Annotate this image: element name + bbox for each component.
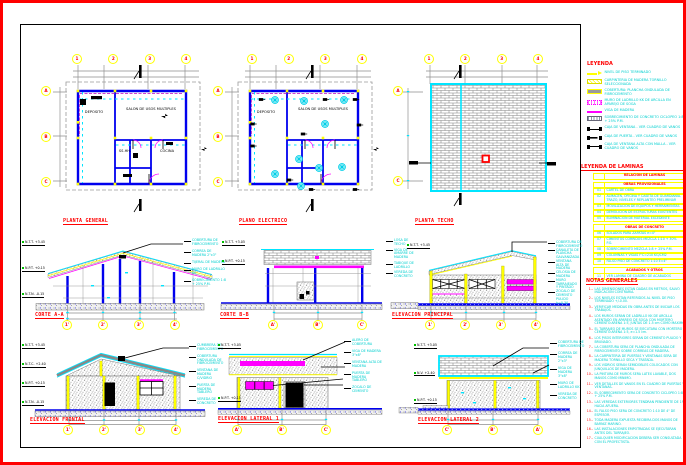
plan-architecture-linework <box>53 65 207 212</box>
leader-line <box>189 371 196 372</box>
row-code: 07 <box>594 238 605 247</box>
note-item: 8.- LA CARPINTERIA DE PUERTAS Y VENTANAS… <box>586 355 686 362</box>
grid-bubble: 3 <box>497 54 507 64</box>
grid-bubble: B <box>41 132 51 142</box>
leader-line <box>548 262 555 263</box>
grid-bubble: B' <box>488 425 498 435</box>
grid-bubble: 3 <box>320 54 330 64</box>
row-code <box>594 174 605 179</box>
leader-line <box>548 292 555 293</box>
leader-line <box>548 273 555 274</box>
note-number: 14.- <box>586 410 593 417</box>
legend-items: NIVEL DE PISO TERMINADO CARPINTERIA DE M… <box>587 71 686 151</box>
legend-swatch <box>587 111 602 113</box>
legend-panel: LEYENDA NIVEL DE PISO TERMINADO CARPINTE… <box>587 61 686 154</box>
note-number: 4.- <box>586 315 593 326</box>
grid-bubbles-plan2-left: ABC <box>213 86 223 187</box>
legend-label: CAJA DE VENTANA ALTA CON MALLA - VER CUA… <box>605 143 686 151</box>
note-text: TODA MADERA EXPUESTA RECIBIRA DOS MANOS … <box>595 419 686 426</box>
leader-line <box>548 281 555 282</box>
legend-item: CAJA DE PUERTA - VER CUADRO DE VANOS <box>587 135 686 141</box>
level-label: N.T.T. +3.45 <box>22 241 45 246</box>
table-row: 07 CIMIENTOS CORRIDOS MEZCLA 1:10 + 30% … <box>593 237 685 248</box>
grid-bubbles-roof-left: AC <box>393 86 403 186</box>
note-number: 8.- <box>586 355 593 362</box>
grid-bubble: A <box>393 86 403 96</box>
legend-label: CAJA DE VENTANA - VER CUADRO DE VANOS <box>605 126 681 130</box>
legend-item: CARPINTERIA DE MADERA TORNILLO SELECCION… <box>587 79 686 87</box>
row-text: CARTEL DE OBRA <box>605 189 684 194</box>
note-item: 6.- LOS PISOS INTERIORES SERAN DE CEMENT… <box>586 337 686 344</box>
level-label: N.T.T. +3.45 <box>407 244 430 249</box>
leader-line <box>550 343 557 344</box>
legend-item: COBERTURA: PLANCHA ONDULADA DE FIBROCEME… <box>587 89 686 97</box>
level-label: N.T.T. +3.05 <box>218 344 241 349</box>
callout-label: ZOCALO DE CEMENTO PULIDO h=0.30 <box>556 290 580 305</box>
row-text: ELIMINACION DE MATERIAL EXCEDENTE <box>605 217 684 222</box>
note-text: LOS NIVELES ESTAN REFERIDOS AL NIVEL DE … <box>595 297 686 304</box>
grid-bubble: 4' <box>531 320 541 330</box>
grid-bubble: A' <box>232 425 242 435</box>
level-label: N.P.T. +0.15 <box>414 399 437 404</box>
material-callouts-elev-lateral1: ALERO DE COBERTURAVIGA DE MADERA 3"x8"VE… <box>344 339 382 394</box>
legend-label: NIVEL DE PISO TERMINADO <box>605 71 651 75</box>
grid-bubble: 1' <box>63 425 73 435</box>
note-number: 10.- <box>586 373 593 380</box>
grid-bubbles-elev-principal: 1'2'3'4' <box>425 320 541 330</box>
leader-line <box>189 357 196 358</box>
view-title-elev-lateral1: ELEVACION LATERAL 1 <box>218 416 279 423</box>
grid-bubbles-plan1-left: ABC <box>41 86 51 187</box>
leader-line <box>344 374 351 375</box>
note-number: 16.- <box>586 428 593 435</box>
grid-bubble: C' <box>321 425 331 435</box>
note-item: 17.- CUALQUIER MODIFICACION DEBERA SER C… <box>586 437 686 444</box>
table-row: RELACION DE LAMINAS <box>593 173 685 180</box>
callout-label: COBERTURA DE FIBROCEMENTO <box>192 239 226 247</box>
level-callouts-elev-principal: N.T.T. +3.45 <box>407 244 431 252</box>
view-title-elev-frontal: ELEVACION FRONTAL <box>30 417 85 424</box>
material-callouts-elev-lateral2: COBERTURA DE FIBROCEMENTOCORREA DE MADER… <box>550 341 581 401</box>
legend-swatch <box>587 126 602 132</box>
table-row: 05 ELIMINACION DE MATERIAL EXCEDENTE <box>593 216 685 223</box>
leader-line <box>386 250 393 251</box>
room-label: SS.HH. <box>113 150 137 154</box>
grid-bubble: 3 <box>145 54 155 64</box>
level-callouts-elev-lateral2: N.T.T. +3.05N.V. +2.40N.P.T. +0.15 <box>414 344 441 404</box>
callout-label: MURO DE LADRILLO KK <box>558 382 581 390</box>
row-text: MOVILIZACION DE EQUIPOS Y HERRAMIENTAS <box>605 205 684 210</box>
leader-line <box>344 363 351 364</box>
callout-label: PUERTA DE MADERA TABLERO <box>352 372 382 383</box>
grid-bubble: B' <box>277 425 287 435</box>
note-number: 5.- <box>586 328 593 335</box>
legend-swatch <box>587 89 602 94</box>
grid-bubble: 3' <box>134 320 144 330</box>
leader-line <box>550 354 557 355</box>
material-callouts-corte-a: COBERTURA DE FIBROCEMENTOCORREA DE MADER… <box>184 239 226 287</box>
legend-swatch <box>587 135 602 141</box>
leader-line <box>189 386 196 387</box>
note-item: 15.- TODA MADERA EXPUESTA RECIBIRA DOS M… <box>586 419 686 426</box>
legend-swatch <box>587 116 602 121</box>
grid-bubbles-plan1-top: 1234 <box>72 54 191 64</box>
grid-bubble: 2 <box>460 54 470 64</box>
note-text: LAS VEREDAS EXTERIORES TENDRAN PENDIENTE… <box>595 401 686 408</box>
grid-bubble: 1' <box>425 320 435 330</box>
drawing-sheet: PLANTA GENERAL PLANO ELECTRICO PLANTA TE… <box>0 0 686 465</box>
note-item: 5.- EL TARRAJEO DE MUROS SE EJECUTARA CO… <box>586 328 686 335</box>
notes-list: 1.- LAS DIMENSIONES ESTAN DADAS EN METRO… <box>586 288 686 445</box>
callout-label: CORREA DE MADERA 2"x3" <box>558 352 581 363</box>
row-code <box>594 225 605 230</box>
legend-item: CAJA DE VENTANA ALTA CON MALLA - VER CUA… <box>587 143 686 151</box>
level-callouts-corte-a: N.T.T. +3.45N.P.T. +0.15N.T.N. -0.15 <box>22 241 50 298</box>
legend-swatch <box>587 79 602 84</box>
roof-plan-linework <box>403 65 556 206</box>
row-code: 01 <box>594 189 605 194</box>
row-text: OBRAS PROVISIONALES <box>605 183 684 188</box>
legend-label: MURO DE LADRILLO KK DE ARCILLA EN APAREJ… <box>605 99 686 107</box>
leader-line <box>189 346 196 347</box>
grid-bubble: 3' <box>135 425 145 435</box>
row-text: DEMOLICION DE ESTRUCTURAS EXISTENTES <box>605 211 684 216</box>
note-number: 15.- <box>586 419 593 426</box>
callout-label: ZOCALO DE CEMENTO <box>352 386 382 394</box>
grid-bubble: A <box>41 86 51 96</box>
room-label: SALON DE USOS MULTIPLES <box>293 108 353 112</box>
legend-label: CAJA DE PUERTA - VER CUADRO DE VANOS <box>605 135 678 139</box>
note-number: 2.- <box>586 297 593 304</box>
note-item: 16.- LAS INSTALACIONES EMPOTRADAS SE EJE… <box>586 428 686 435</box>
level-callouts-elev-frontal: N.T.T. +3.45N.T.C. +2.40N.P.T. +0.15N.T.… <box>22 344 52 406</box>
leader-line <box>386 241 393 242</box>
view-title-corte-a: CORTE A-A <box>35 312 64 319</box>
note-item: 10.- LA PINTURA DE MUROS SERA LATEX LAVA… <box>586 373 686 380</box>
leader-line <box>550 384 557 385</box>
leader-line <box>184 252 191 253</box>
row-text: ALMACEN, OFICINA Y CASETA DE GUARDIANIA.… <box>605 195 684 204</box>
roof-center-marker <box>483 156 490 163</box>
row-code: 08 <box>594 247 605 252</box>
leader-line <box>344 352 351 353</box>
leader-line <box>344 388 351 389</box>
grid-bubble: 1 <box>424 54 434 64</box>
grid-bubble: C <box>393 176 403 186</box>
note-item: 13.- LAS VEREDAS EXTERIORES TENDRAN PEND… <box>586 401 686 408</box>
row-code: 03 <box>594 205 605 210</box>
grid-bubble: C' <box>442 425 452 435</box>
note-item: 3.- VERIFICAR MEDIDAS EN OBRA ANTES DE I… <box>586 306 686 313</box>
level-label: N.T.N. -0.15 <box>22 401 44 406</box>
row-code: 02 <box>594 195 605 204</box>
note-item: 14.- EL FALSO PISO SERA DE CONCRETO 1:10… <box>586 410 686 417</box>
row-code <box>594 183 605 188</box>
note-text: LA PINTURA DE MUROS SERA LATEX LAVABLE, … <box>595 373 686 380</box>
table-row: 10 FALSO PISO DE CONCRETO 1:10 E=4" <box>593 259 685 266</box>
level-label: N.T.T. +3.45 <box>22 344 45 349</box>
room-label: COCINA <box>153 150 181 154</box>
leader-line <box>344 341 351 342</box>
sheet-index-title: LEYENDA DE LAMINAS <box>581 164 686 171</box>
level-label: N.P.T. +0.15 <box>218 397 241 402</box>
callout-label: VIGA DE MADERA 3"x8" <box>558 367 581 378</box>
note-text: EL SOBRECIMIENTO SERA DE CONCRETO CICLOP… <box>595 392 686 399</box>
note-text: VERIFICAR MEDIDAS EN OBRA ANTES DE INICI… <box>595 306 686 313</box>
note-number: 7.- <box>586 346 593 353</box>
note-number: 9.- <box>586 364 593 371</box>
callout-label: ALERO DE COBERTURA <box>352 339 382 347</box>
note-text: EL FALSO PISO SERA DE CONCRETO 1:10 DE 4… <box>595 410 686 417</box>
leader-line <box>189 400 196 401</box>
sheet-index-table: RELACION DE LAMINAS OBRAS PROVISIONALES … <box>593 173 685 281</box>
note-number: 1.- <box>586 288 593 295</box>
note-text: LAS DIMENSIONES ESTAN DADAS EN METROS, S… <box>595 288 686 295</box>
view-title-elev-lateral2: ELEVACION LATERAL 2 <box>418 417 479 424</box>
legend-swatch <box>587 100 602 105</box>
level-label: N.P.T. +0.15 <box>22 267 45 272</box>
grid-bubble: 2 <box>108 54 118 64</box>
grid-bubble: A' <box>268 320 278 330</box>
grid-bubbles-roof-top: 1234 <box>424 54 543 64</box>
grid-bubble: 4 <box>357 54 367 64</box>
row-code: 09 <box>594 254 605 259</box>
callout-label: VEREDA DE CONCRETO <box>558 393 581 401</box>
grid-bubbles-elev-lateral2: C'B'A' <box>442 425 543 435</box>
legend-item: MURO DE LADRILLO KK DE ARCILLA EN APAREJ… <box>587 99 686 107</box>
grid-bubbles-plan2-top: 1234 <box>247 54 367 64</box>
row-text: OBRAS DE CONCRETO <box>605 225 684 230</box>
grid-bubble: 1 <box>247 54 257 64</box>
note-text: LOS PISOS INTERIORES SERAN DE CEMENTO PU… <box>595 337 686 344</box>
callout-label: SOBRECIMIENTO 1:8 + 25% P.M. <box>192 279 226 287</box>
callout-label: TIJERAL DE MADERA <box>192 261 225 265</box>
callout-label: TABIQUE DE LADRILLO <box>394 262 419 270</box>
view-title-plan-techo: PLANTA TECHO <box>415 218 454 225</box>
note-item: 1.- LAS DIMENSIONES ESTAN DADAS EN METRO… <box>586 288 686 295</box>
note-number: 12.- <box>586 392 593 399</box>
general-notes-panel: NOTAS GENERALES 1.- LAS DIMENSIONES ESTA… <box>586 267 686 447</box>
view-title-elev-principal: ELEVACION PRINCIPAL <box>392 312 453 319</box>
leader-line <box>386 264 393 265</box>
room-label: DEPOSITO <box>251 111 281 115</box>
row-code: 10 <box>594 260 605 265</box>
note-item: 9.- LOS VIDRIOS SERAN SEMIDOBLES COLOCAD… <box>586 364 686 371</box>
legend-label: COBERTURA: PLANCHA ONDULADA DE FIBROCEME… <box>605 89 686 97</box>
row-code: 04 <box>594 211 605 216</box>
grid-bubble: 2' <box>460 320 470 330</box>
level-label: N.T.T. +3.05 <box>414 344 437 349</box>
note-number: 17.- <box>586 437 593 444</box>
row-text: COLUMNAS Y VIGAS F'C=210 KG/CM2 <box>605 254 684 259</box>
legend-label: CARPINTERIA DE MADERA TORNILLO SELECCION… <box>605 79 686 87</box>
grid-bubble: B <box>213 132 223 142</box>
grid-bubble: 4' <box>171 425 181 435</box>
grid-bubble: 3' <box>496 320 506 330</box>
room-label: DEPOSITO <box>79 111 109 115</box>
note-item: 4.- LOS MUROS SERAN DE LADRILLO KK DE AR… <box>586 315 686 326</box>
level-label: N.P.T. +0.15 <box>22 382 45 387</box>
row-text: SOLADOS PARA ZAPATAS e=4" <box>605 232 684 237</box>
callout-label: CORREA DE MADERA 2"x3" <box>192 250 226 258</box>
callout-label: VIGA DE MADERA 3"x8" <box>352 350 382 358</box>
note-text: LAS INSTALACIONES EMPOTRADAS SE EJECUTAR… <box>595 428 686 435</box>
legend-swatch <box>587 144 602 150</box>
notes-title: NOTAS GENERALES <box>586 279 638 285</box>
grid-bubbles-elev-lateral1: A'B'C' <box>232 425 331 435</box>
row-code: 06 <box>594 232 605 237</box>
legend-label: SOBRECIMIENTO DE CONCRETO CICLOPEO 1:8 +… <box>605 116 686 124</box>
grid-bubbles-corte-b: A'B'C' <box>268 320 367 330</box>
legend-label: VIGA DE MADERA <box>605 109 635 113</box>
legend-item: NIVEL DE PISO TERMINADO <box>587 71 686 76</box>
leader-line <box>548 243 555 244</box>
view-title-corte-b: CORTE B-B <box>220 312 249 319</box>
legend-swatch <box>587 71 602 76</box>
grid-bubble: A <box>213 86 223 96</box>
leader-line <box>184 263 191 264</box>
note-text: LOS MUROS SERAN DE LADRILLO KK DE ARCILL… <box>595 315 686 326</box>
leader-line <box>184 241 191 242</box>
view-title-plan-general: PLANTA GENERAL <box>63 218 108 225</box>
note-item: 7.- LA COBERTURA SERA DE PLANCHA ONDULAD… <box>586 346 686 353</box>
note-item: 2.- LOS NIVELES ESTAN REFERIDOS AL NIVEL… <box>586 297 686 304</box>
leader-line <box>550 369 557 370</box>
legend-item: CAJA DE VENTANA - VER CUADRO DE VANOS <box>587 126 686 132</box>
legend-item: VIGA DE MADERA <box>587 109 686 113</box>
row-text: SOBRECIMIENTO MEZCLA 1:8 + 25% P.M. <box>605 247 684 252</box>
leader-line <box>550 395 557 396</box>
grid-bubble: 1 <box>72 54 82 64</box>
grid-bubbles-elev-frontal: 1'2'3'4' <box>63 425 181 435</box>
note-text: LA COBERTURA SERA DE PLANCHA ONDULADA DE… <box>595 346 686 353</box>
row-text: RELACION DE LAMINAS <box>605 174 684 179</box>
legend-title: LEYENDA <box>587 61 686 67</box>
note-number: 3.- <box>586 306 593 313</box>
callout-label: MURO DE LADRILLO KK <box>192 268 226 276</box>
sheet-index-panel: LEYENDA DE LAMINAS RELACION DE LAMINAS O… <box>581 164 686 280</box>
leader-line <box>548 250 555 251</box>
note-item: 11.- VER DETALLES DE VANOS EN EL CUADRO … <box>586 383 686 390</box>
row-text: FALSO PISO DE CONCRETO 1:10 E=4" <box>605 260 684 265</box>
note-text: EL TARRAJEO DE MUROS SE EJECUTARA CON MO… <box>595 328 686 335</box>
note-text: CUALQUIER MODIFICACION DEBERA SER CONSUL… <box>595 437 686 444</box>
level-label: N.T.T. +3.05 <box>222 241 245 246</box>
grid-bubble: C' <box>357 320 367 330</box>
grid-bubble: A' <box>533 425 543 435</box>
note-text: VER DETALLES DE VANOS EN EL CUADRO DE PU… <box>595 383 686 390</box>
grid-bubble: 4 <box>533 54 543 64</box>
grid-bubble: 4 <box>181 54 191 64</box>
row-text: CIMIENTOS CORRIDOS MEZCLA 1:10 + 30% P.G… <box>605 238 684 247</box>
grid-bubble: 2' <box>99 425 109 435</box>
callout-label: VENTANA ALTA DE MADERA <box>352 361 382 369</box>
note-item: 12.- EL SOBRECIMIENTO SERA DE CONCRETO C… <box>586 392 686 399</box>
grid-bubble: 1' <box>62 320 72 330</box>
callout-label: VEREDA DE CONCRETO <box>394 271 419 279</box>
legend-item: SOBRECIMIENTO DE CONCRETO CICLOPEO 1:8 +… <box>587 116 686 124</box>
level-label: N.V. +2.40 <box>414 372 435 377</box>
grid-bubble: 2 <box>284 54 294 64</box>
level-callouts-corte-b: N.T.T. +3.05N.P.T. +0.15 <box>222 241 248 265</box>
level-label: N.P.T. +0.15 <box>222 260 245 265</box>
level-callouts-elev-lateral1: N.T.T. +3.05N.P.T. +0.15 <box>218 344 240 402</box>
grid-bubble: C <box>41 177 51 187</box>
grid-bubble: C <box>213 177 223 187</box>
note-text: LOS VIDRIOS SERAN SEMIDOBLES COLOCADOS C… <box>595 364 686 371</box>
view-title-plan-electrico: PLANO ELECTRICO <box>239 218 287 225</box>
note-number: 11.- <box>586 383 593 390</box>
level-label: N.T.N. -0.15 <box>22 293 44 298</box>
callout-label: COBERTURA DE FIBROCEMENTO <box>558 341 584 349</box>
room-label: SALON DE USOS MULTIPLES <box>121 108 181 112</box>
grid-bubble: 4' <box>170 320 180 330</box>
grid-bubble: B' <box>313 320 323 330</box>
note-text: LA CARPINTERIA DE PUERTAS Y VENTANAS SER… <box>595 355 686 362</box>
table-row: 02 ALMACEN, OFICINA Y CASETA DE GUARDIAN… <box>593 194 685 205</box>
leader-line <box>184 270 191 271</box>
note-number: 6.- <box>586 337 593 344</box>
row-code: 05 <box>594 217 605 222</box>
grid-bubbles-corte-a: 1'2'3'4' <box>62 320 180 330</box>
note-number: 13.- <box>586 401 593 408</box>
leader-line <box>184 281 191 282</box>
level-label: N.T.C. +2.40 <box>22 363 46 368</box>
grid-bubble: 2' <box>98 320 108 330</box>
leader-line <box>386 273 393 274</box>
plan-electrical-linework <box>225 65 379 212</box>
material-callouts-elev-principal: COBERTURA DE FIBROCEMENTOCANALETA DE PLA… <box>548 241 580 303</box>
